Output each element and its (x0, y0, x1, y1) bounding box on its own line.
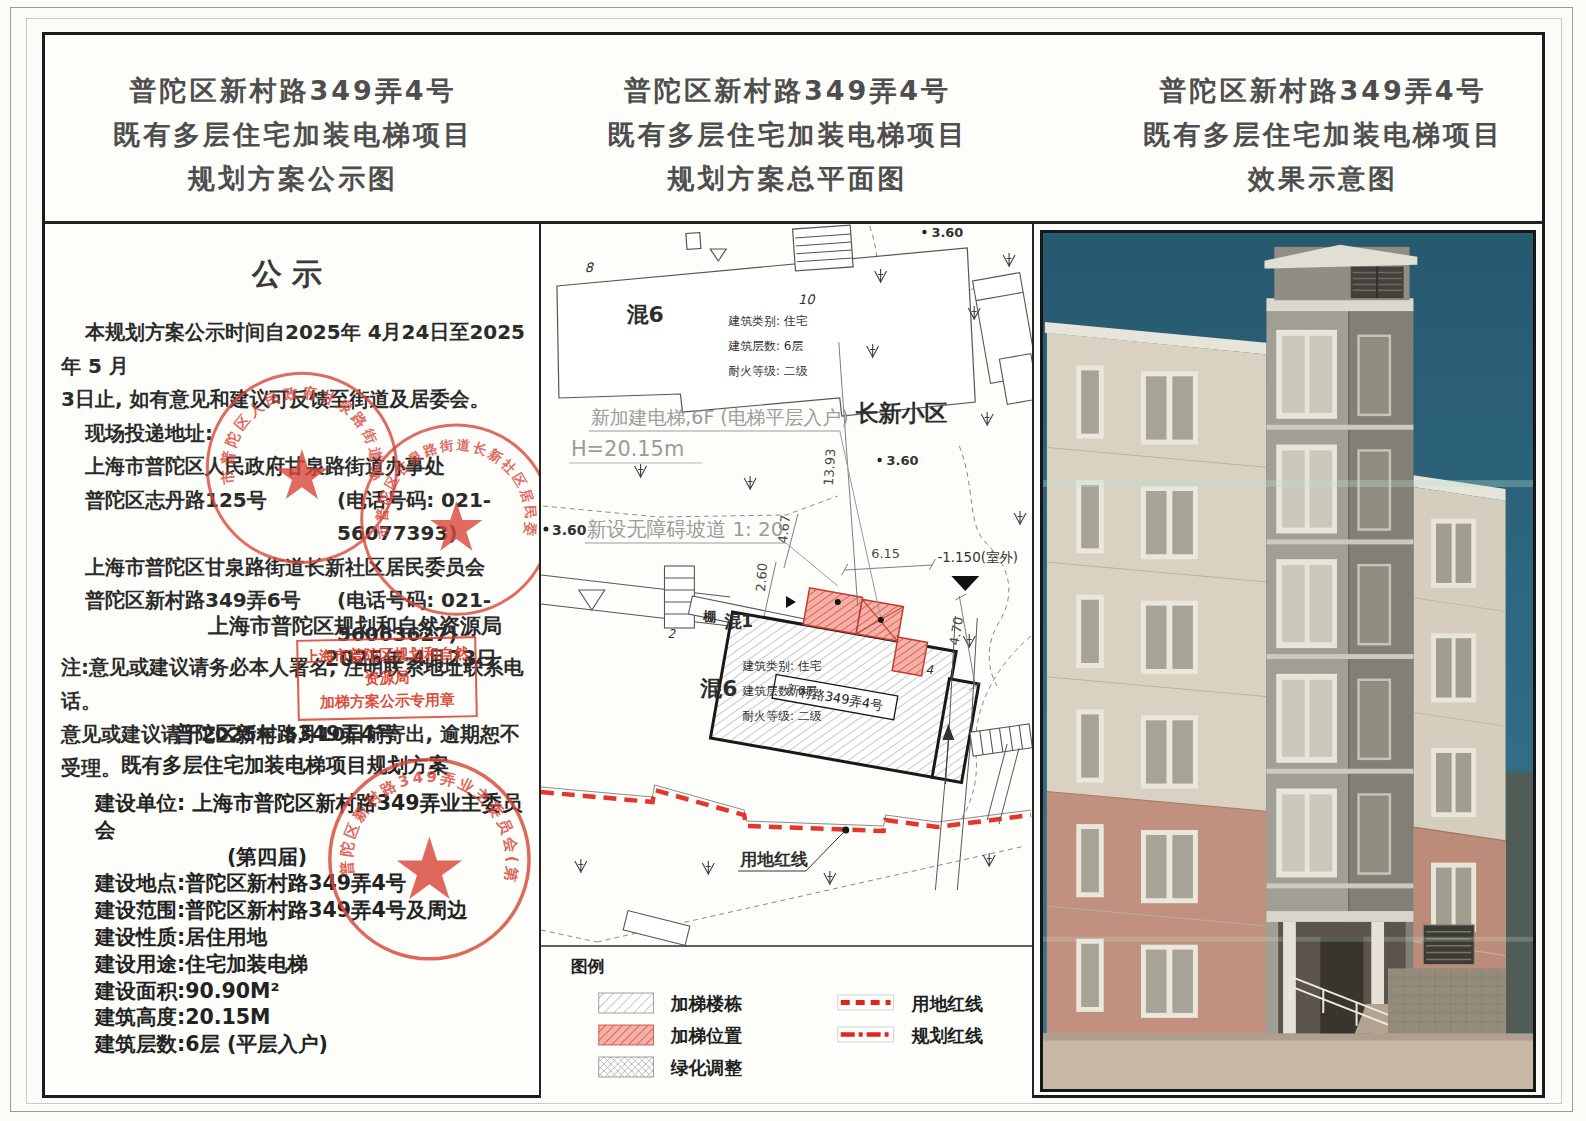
rendering-panel (1034, 224, 1542, 1098)
title-line: 既有多层住宅加装电梯项目 (45, 113, 541, 157)
title-line: 普陀区新村路349弄4号 (45, 69, 541, 113)
ramp-note: 新设无障碍坡道 1: 20 (587, 517, 784, 541)
building-annotation-top: 建筑类别: 住宅 建筑层数: 6层 耐火等级: 二级 (727, 314, 808, 378)
building-rendering (1043, 233, 1533, 1089)
title-line: 普陀区新村路349弄4号 (1104, 69, 1542, 113)
project-details: 建设单位: 上海市普陀区新村路349弄业主委员会 (第四届) 建设地点:普陀区新… (95, 790, 539, 1058)
address-phone: (电话号码: 021-56077393) (337, 484, 529, 551)
rect-official-stamp: 上海市普陀区规划和自然资源局 加梯方案公示专用章 (296, 636, 478, 721)
detail-line: 建设面积:90.90M² (95, 978, 539, 1005)
svg-text:建筑层数: 6层: 建筑层数: 6层 (727, 339, 803, 353)
legend-swatch-crosshatch (599, 1057, 654, 1077)
retaining-wall (1388, 968, 1506, 1033)
site-plan-panel: 新村路349弄4号 用地红线 (541, 224, 1034, 1098)
svg-text:耐火等级: 二级: 耐火等级: 二级 (728, 364, 808, 378)
legend-swatch-hatch (599, 993, 654, 1013)
notice-line: 上海市普陀区人民政府甘泉路街道办事处 (85, 450, 529, 484)
notice-line: 现场投递地址: (85, 417, 529, 451)
right-panel-title: 普陀区新村路349弄4号 既有多层住宅加装电梯项目 效果示意图 (1034, 35, 1542, 221)
detail-line: 建筑层数:6层 (平层入户) (95, 1031, 539, 1058)
title-line: 既有多层住宅加装电梯项目 (541, 113, 1034, 157)
notice-line: 上海市普陀区甘泉路街道长新社区居民委员会 (85, 551, 529, 585)
detail-line: 建设性质:居住用地 (95, 924, 539, 951)
middle-panel-title: 普陀区新村路349弄4号 既有多层住宅加装电梯项目 规划方案总平面图 (541, 35, 1034, 221)
drawing-frame: 普陀区新村路349弄4号 既有多层住宅加装电梯项目 规划方案公示图 普陀区新村路… (42, 32, 1545, 1098)
left-panel-title: 普陀区新村路349弄4号 既有多层住宅加装电梯项目 规划方案公示图 (45, 35, 541, 221)
notice-line: 3日止, 如有意见和建议可反馈至街道及居委会。 (61, 383, 529, 417)
svg-text:3.60: 3.60 (931, 225, 963, 240)
title-band: 普陀区新村路349弄4号 既有多层住宅加装电梯项目 规划方案公示图 普陀区新村路… (45, 35, 1542, 224)
detail-line: 建设单位: 上海市普陀区新村路349弄业主委员会 (95, 790, 539, 844)
legend-label: 加梯位置 (669, 1025, 742, 1046)
vent-grille (1423, 925, 1474, 965)
project-subtitle: 普陀区新村路349弄4号 (45, 720, 525, 748)
dim-6-15: 6.15 (871, 546, 900, 561)
legend-label: 绿化调整 (670, 1057, 742, 1078)
bldg-type-hun6-top: 混6 (626, 302, 664, 327)
new-elevator-note: 新加建电梯,6F (电梯平层入户) (591, 406, 849, 428)
svg-text:建筑层数: 6层: 建筑层数: 6层 (741, 684, 817, 698)
title-line: 规划方案公示图 (45, 157, 541, 201)
svg-text:3.60: 3.60 (887, 453, 919, 468)
bldg-type-hun6-bottom: 混6 (699, 676, 737, 701)
left-wing (1045, 322, 1266, 1034)
title-line: 普陀区新村路349弄4号 (541, 69, 1034, 113)
legend-label: 规划红线 (910, 1025, 983, 1046)
redline-label: 用地红线 (739, 849, 808, 869)
title-line: 既有多层住宅加装电梯项目 (1104, 113, 1542, 157)
bldg-no-4: 4 (925, 663, 933, 677)
site-plan-drawing: 新村路349弄4号 用地红线 (541, 224, 1032, 1098)
rendering-frame (1040, 230, 1536, 1092)
height-note: H=20.15m (571, 437, 684, 461)
tower-penthouse (1264, 245, 1417, 300)
detail-line: 建设地点:普陀区新村路349弄4号 (95, 870, 539, 897)
ground (1043, 1034, 1533, 1089)
svg-text:耐火等级: 二级: 耐火等级: 二级 (742, 709, 822, 723)
entrance (1266, 911, 1505, 1034)
building-annotation-bottom: 建筑类别: 住宅 建筑层数: 6层 耐火等级: 二级 (741, 659, 822, 723)
notice-heading: 公示 (45, 254, 539, 295)
scanned-planning-notice: 普陀区新村路349弄4号 既有多层住宅加装电梯项目 规划方案公示图 普陀区新村路… (0, 0, 1586, 1121)
svg-text:3.60: 3.60 (552, 522, 587, 538)
legend-label: 用地红线 (910, 993, 983, 1014)
detail-line: 建筑高度:20.15M (95, 1004, 539, 1031)
address-row: 普陀区志丹路125号 (电话号码: 021-56077393) (85, 484, 529, 551)
shed-label: 棚 (702, 609, 716, 624)
stamp-line: 上海市普陀区规划和自然资源局 (300, 642, 473, 692)
title-line: 效果示意图 (1104, 157, 1542, 201)
notice-panel: 公示 本规划方案公示时间自2025年 4月24日至2025年 5 月 3日止, … (45, 224, 541, 1098)
stamp-line: 加梯方案公示专用章 (301, 688, 473, 715)
bldg-type-hun1: 混1 (724, 611, 753, 631)
title-line: 规划方案总平面图 (541, 157, 1034, 201)
detail-line: 建设用途:住宅加装电梯 (95, 951, 539, 978)
project-subtitle: 既有多层住宅加装电梯项目规划方案 (45, 751, 525, 779)
legend-title: 图例 (571, 956, 605, 976)
background-wall (1504, 772, 1533, 1034)
legend-swatch-red-hatch (599, 1025, 654, 1045)
dim-13-93: 13.93 (821, 448, 839, 486)
outdoor-level-label: -1.150(室外) (937, 549, 1018, 565)
notice-line: 本规划方案公示时间自2025年 4月24日至2025年 5 月 (61, 316, 529, 383)
address-name: 普陀区志丹路125号 (85, 484, 337, 551)
svg-text:建筑类别: 住宅: 建筑类别: 住宅 (727, 314, 808, 328)
detail-line: 建设范围:普陀区新村路349弄4号及周边 (95, 897, 539, 924)
tower-windows (1276, 330, 1390, 878)
detail-line: (第四届) (227, 844, 539, 871)
bldg-no-10: 10 (798, 292, 816, 307)
svg-text:建筑类别: 住宅: 建筑类别: 住宅 (741, 659, 822, 673)
scan-artifact-line (1043, 480, 1533, 487)
legend-label: 加梯楼栋 (669, 993, 742, 1014)
dim-2-60: 2.60 (753, 562, 770, 592)
scan-artifact-line (1043, 937, 1533, 942)
estate-name: 长新小区 (855, 400, 948, 426)
